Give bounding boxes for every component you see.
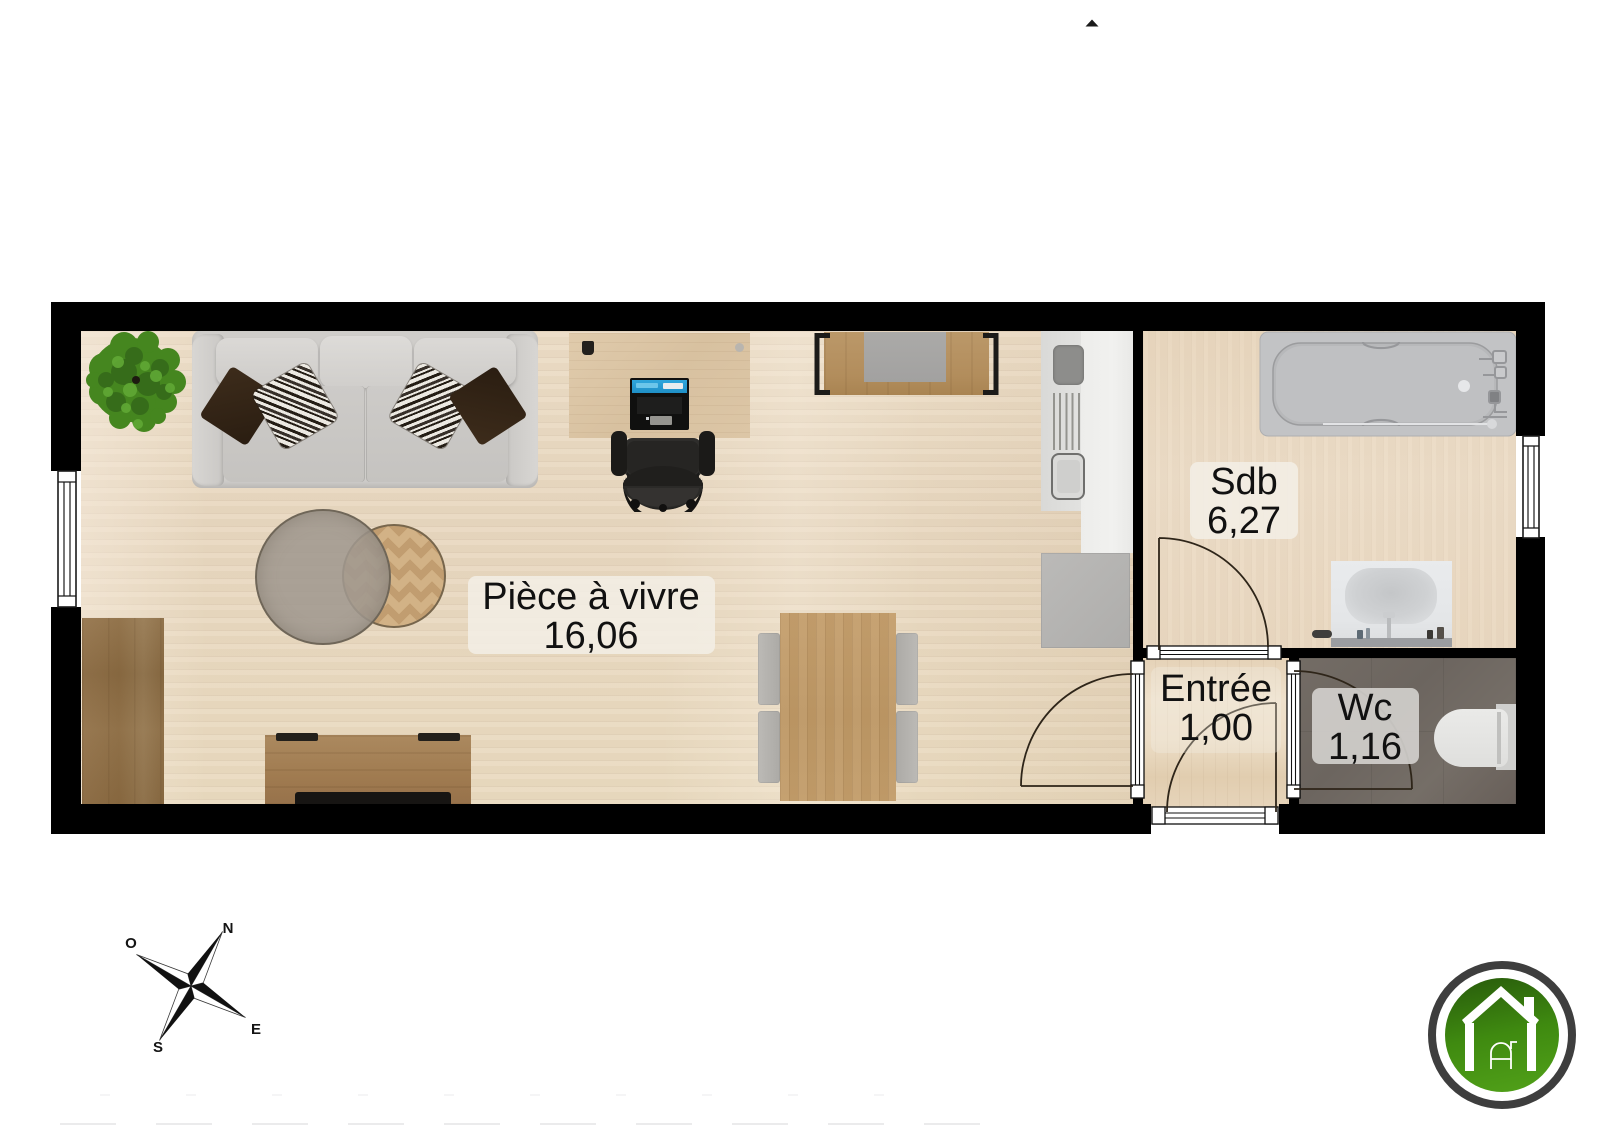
svg-text:S: S [153, 1039, 163, 1056]
svg-text:N: N [223, 920, 234, 937]
svg-text:O: O [125, 935, 137, 952]
svg-text:E: E [251, 1021, 261, 1038]
